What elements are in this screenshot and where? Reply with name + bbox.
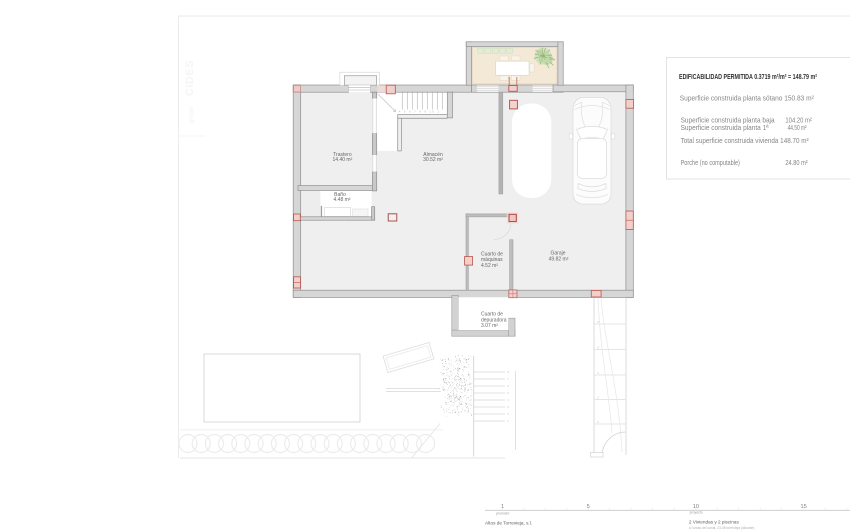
svg-text:EDIFICABILIDAD PERMITIDA 0.371: EDIFICABILIDAD PERMITIDA 0.3719 m²/m² = … <box>679 72 817 81</box>
svg-text:5: 5 <box>587 504 590 510</box>
svg-text:CIDES: CIDES <box>184 60 196 96</box>
svg-text:49.82 m²: 49.82 m² <box>549 257 569 263</box>
svg-text:Superficie construida planta s: Superficie construida planta sótano 150.… <box>680 93 815 102</box>
svg-text:4.52 m²: 4.52 m² <box>481 263 498 269</box>
svg-text:1: 1 <box>507 420 509 423</box>
svg-text:Porche (no computable): Porche (no computable) <box>681 158 740 167</box>
svg-text:Superficie construida planta 1: Superficie construida planta 1ª <box>681 123 769 132</box>
svg-text:c/ lomas del canal, 23-08 torr: c/ lomas del canal, 23-08 torrevieja (al… <box>689 526 755 530</box>
svg-text:6: 6 <box>507 385 509 388</box>
svg-text:proyecto: proyecto <box>690 510 703 514</box>
svg-text:Total superficie construida vi: Total superficie construida vivienda 148… <box>681 136 809 145</box>
svg-text:grupo: grupo <box>189 106 195 123</box>
svg-text:5: 5 <box>507 392 509 395</box>
svg-text:3: 3 <box>507 406 509 409</box>
svg-text:7: 7 <box>507 378 509 381</box>
svg-text:4 5 6 7 8 9 10 1: 4 5 6 7 8 9 10 1 <box>399 111 440 114</box>
svg-text:44.50 m²: 44.50 m² <box>788 123 807 132</box>
svg-text:10: 10 <box>693 504 699 510</box>
svg-text:15: 15 <box>800 504 806 510</box>
svg-text:1: 1 <box>501 504 504 510</box>
svg-text:4.48 m²: 4.48 m² <box>334 197 351 203</box>
svg-text:4: 4 <box>507 399 509 402</box>
svg-text:8: 8 <box>507 371 509 374</box>
svg-text:24.80 m²: 24.80 m² <box>785 158 808 167</box>
svg-text:14.40 m²: 14.40 m² <box>333 157 353 163</box>
svg-text:Altos de Torrevieja, s.l.: Altos de Torrevieja, s.l. <box>485 521 532 526</box>
svg-text:3.07 m²: 3.07 m² <box>481 323 498 329</box>
svg-text:2: 2 <box>507 413 509 416</box>
svg-text:2 Viviendas y 2 piscinas: 2 Viviendas y 2 piscinas <box>689 519 740 524</box>
svg-text:30.52 m²: 30.52 m² <box>423 157 443 163</box>
svg-text:promotor: promotor <box>496 511 510 515</box>
